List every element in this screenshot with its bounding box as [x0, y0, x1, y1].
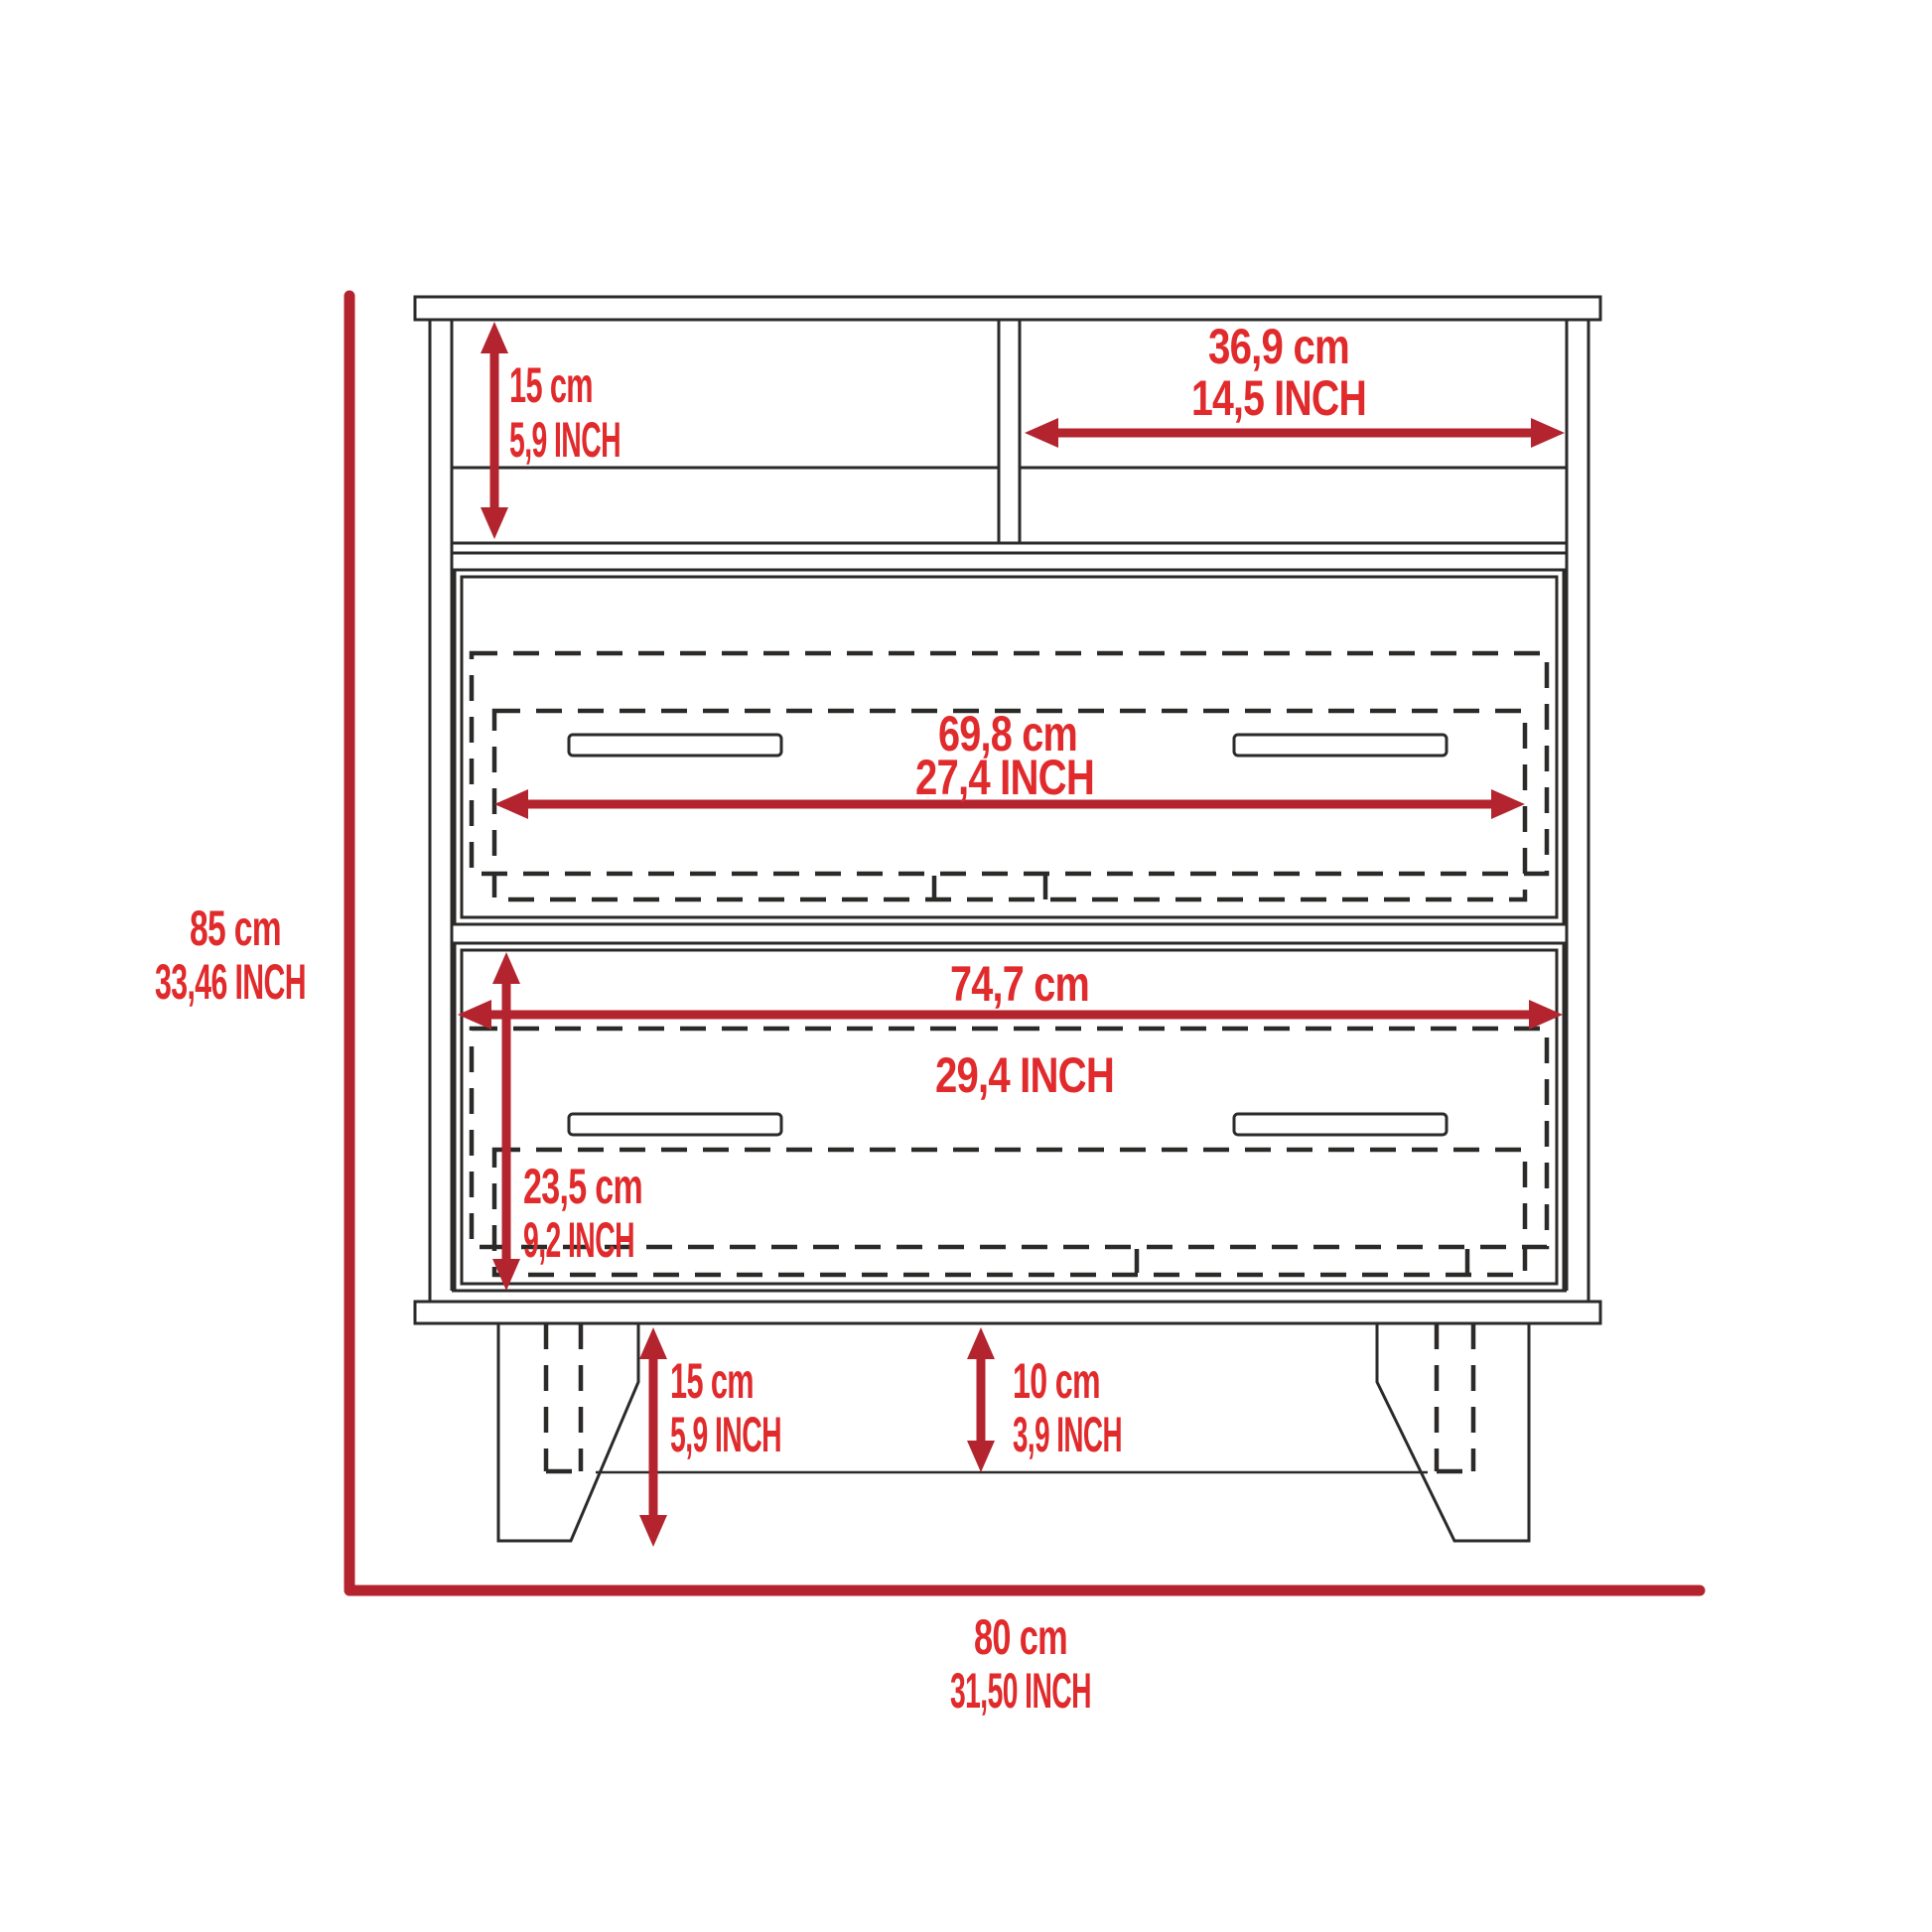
drawer-bottom-handle-left — [569, 1114, 781, 1135]
drawer-bottom-width-inch: 29,4 INCH — [935, 1047, 1114, 1103]
overall-width-cm: 80 cm — [974, 1609, 1067, 1665]
shelf-height-cm: 15 cm — [509, 357, 593, 413]
top-board — [415, 297, 1600, 320]
base-clearance-inch: 3,9 INCH — [1013, 1407, 1122, 1462]
dimension-diagram-page: 85 cm 33,46 INCH 80 cm 31,50 INCH 15 cm … — [0, 0, 1932, 1932]
leg-height-cm: 15 cm — [670, 1353, 754, 1409]
overall-width-inch: 31,50 INCH — [950, 1663, 1091, 1719]
drawer-top-handle-right — [1234, 735, 1447, 756]
dresser-dimension-diagram: 85 cm 33,46 INCH 80 cm 31,50 INCH 15 cm … — [0, 0, 1932, 1932]
drawer-bottom-height-inch: 9,2 INCH — [523, 1212, 634, 1268]
drawer-top-handle-left — [569, 735, 781, 756]
drawer-bottom-handle-right — [1234, 1114, 1447, 1135]
shelf-width-inch: 14,5 INCH — [1191, 370, 1366, 426]
shelf-height-inch: 5,9 INCH — [509, 412, 621, 468]
leg-height-inch: 5,9 INCH — [670, 1407, 781, 1462]
base-board — [415, 1302, 1600, 1323]
overall-height-cm: 85 cm — [190, 900, 281, 956]
drawer-top-width-inch: 27,4 INCH — [915, 750, 1094, 805]
overall-height-inch: 33,46 INCH — [155, 954, 306, 1010]
base-clearance-cm: 10 cm — [1013, 1353, 1100, 1409]
drawer-bottom-width-cm: 74,7 cm — [950, 956, 1089, 1012]
drawer-bottom-height-cm: 23,5 cm — [523, 1159, 642, 1214]
shelf-width-cm: 36,9 cm — [1208, 319, 1349, 374]
